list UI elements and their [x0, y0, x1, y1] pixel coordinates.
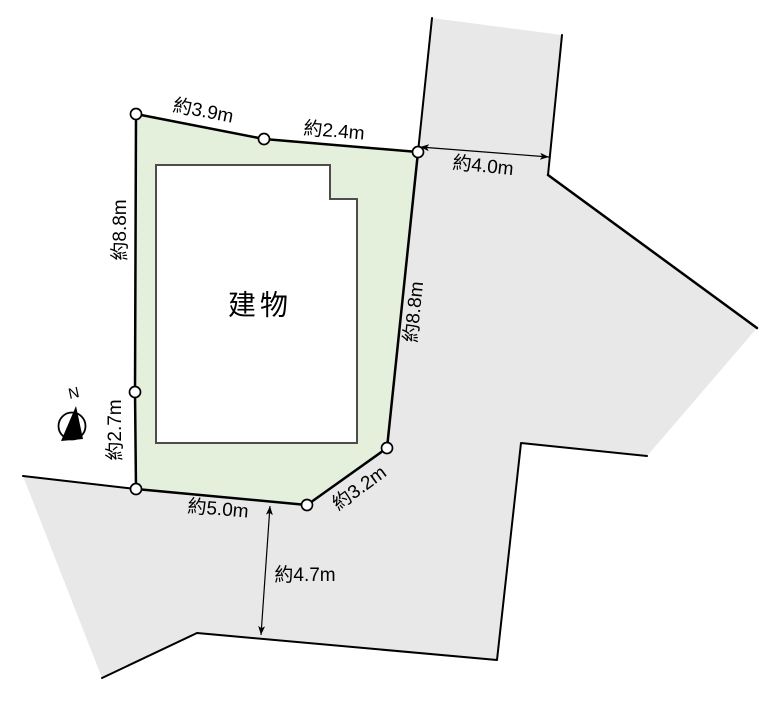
boundary-vertex: [131, 109, 142, 120]
dimension-label-road-bottom-width: 約4.7m: [274, 564, 335, 586]
boundary-vertex: [131, 484, 142, 495]
boundary-vertex: [413, 147, 424, 158]
boundary-vertex: [130, 387, 141, 398]
plot-diagram-canvas: 建物 約3.9m 約2.4m 約4.0m 約8.8m 約2.7m 約8.8m 約…: [0, 0, 774, 706]
dimension-label-top-right: 約2.4m: [303, 117, 366, 144]
boundary-vertex: [382, 443, 393, 454]
north-label: N: [67, 384, 81, 403]
land-plot-diagram: 建物 約3.9m 約2.4m 約4.0m 約8.8m 約2.7m 約8.8m 約…: [0, 0, 774, 706]
dimension-label-left-upper: 約8.8m: [109, 199, 131, 260]
boundary-vertex: [302, 500, 313, 511]
north-indicator: N: [59, 384, 86, 441]
building-label: 建物: [228, 289, 292, 320]
dimension-label-left-lower: 約2.7m: [104, 399, 126, 460]
boundary-vertex: [259, 134, 270, 145]
